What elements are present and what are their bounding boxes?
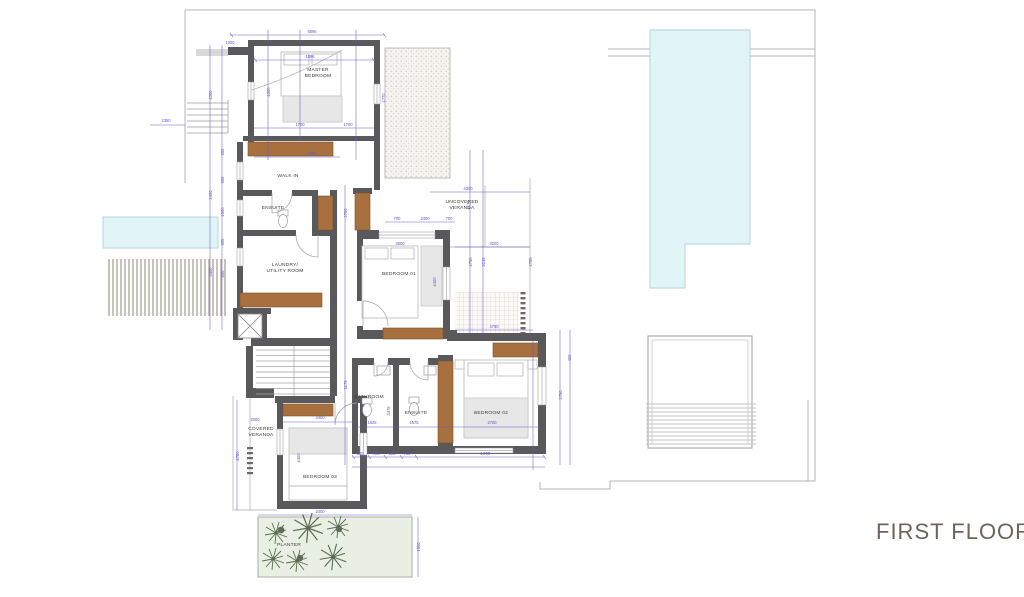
room-label-bedroom-03: BEDROOM 03	[303, 474, 337, 480]
room-label-laundry: LAUNDRY/UTILITY ROOM	[266, 262, 303, 274]
dim-label: 1500	[416, 542, 421, 552]
dim-label: 4780	[235, 451, 240, 461]
shaft	[238, 314, 262, 338]
dim-label: 1700	[343, 122, 353, 127]
dim-label: 3215	[481, 257, 486, 267]
bed03	[289, 428, 347, 500]
bed01	[362, 246, 442, 318]
dim-label: 4300	[463, 186, 473, 191]
stipple-terrace	[385, 48, 450, 178]
dim-label: 1000	[225, 40, 235, 45]
dim-label: 2400	[208, 190, 213, 200]
dim-label: 1575	[409, 420, 419, 425]
dim-label: 2700	[487, 420, 497, 425]
dim-label: 1625	[367, 420, 377, 425]
dim-label: 2400	[420, 216, 430, 221]
room-label-walk-in: WALK IN	[277, 173, 299, 179]
dim-label: 2050	[307, 151, 317, 156]
dim-label: 600	[220, 176, 225, 184]
dim-label: 2750	[558, 390, 563, 400]
room-label-bedroom-02: BEDROOM 02	[474, 410, 508, 416]
dim-label: 700	[394, 216, 402, 221]
dim-label: 4,090	[480, 451, 491, 456]
dim-label: 1770	[381, 93, 386, 103]
plan-title: FIRST FLOOR	[876, 519, 1024, 545]
dim-label: 4790	[489, 324, 499, 329]
dim-label: 3600	[395, 241, 405, 246]
room-label-planter: PLANTER	[277, 542, 301, 548]
dim-label: 3475	[386, 406, 391, 416]
pergola-right	[646, 336, 756, 448]
dim-label: 3200	[489, 241, 499, 246]
master-bed	[252, 50, 342, 122]
dim-label: 4400	[296, 453, 301, 463]
dim-label: 300	[357, 451, 365, 456]
dim-label: 1700	[295, 122, 305, 127]
dim-label: 2400	[315, 509, 325, 514]
dim-label: 3400	[208, 267, 213, 277]
room-label-uncovered-veranda: UNCOVEREDVERANDA	[445, 199, 478, 211]
dim-label: 600	[220, 238, 225, 246]
dim-label: 400	[567, 354, 572, 362]
dim-label: 1500	[220, 207, 225, 217]
room-label-ensuite-lower: ENSUITE	[405, 410, 428, 416]
dim-label: 3175	[343, 380, 348, 390]
dim-label: 5896	[307, 29, 317, 34]
dim-label: 4300	[266, 87, 271, 97]
dim-label: 3400	[315, 415, 325, 420]
floor-plan-page: MASTERBEDROOMWALK INENSUITELAUNDRY/UTILI…	[0, 0, 1024, 597]
dim-label: 4750	[468, 257, 473, 267]
room-label-bedroom-01: BEDROOM 01	[382, 271, 416, 277]
room-label-master-bedroom: MASTERBEDROOM	[305, 67, 332, 79]
bed02	[455, 360, 537, 438]
ensuite-lower-fixtures	[409, 366, 436, 416]
dim-label: 2350	[161, 118, 171, 123]
room-label-ensuite-upper: ENSUITE	[262, 205, 285, 211]
pool-right	[650, 30, 750, 288]
dim-label: 4400	[432, 277, 437, 287]
room-label-bathroom: BATHROOM	[354, 394, 384, 400]
dim-label: 700	[404, 451, 412, 456]
dim-label: 650	[220, 148, 225, 156]
dim-label: 2750	[343, 208, 348, 218]
pool-left	[103, 217, 218, 248]
floor-plan-canvas: MASTERBEDROOMWALK INENSUITELAUNDRY/UTILI…	[0, 0, 1024, 597]
ensuite-upper-fixtures	[278, 210, 288, 228]
dim-label: 900	[389, 451, 397, 456]
dim-label: 850	[220, 270, 225, 278]
room-label-covered-veranda: COVEREDVERANDA	[248, 426, 274, 438]
dim-label: 1896	[305, 54, 315, 59]
dim-label: 4300	[208, 90, 213, 100]
dim-label: 2000	[250, 417, 260, 422]
dim-label: 700	[446, 216, 454, 221]
dim-label: 4785	[528, 257, 533, 267]
dim-label: 4170	[466, 200, 471, 210]
dim-label: 700	[373, 451, 381, 456]
edge-dashes	[521, 292, 526, 334]
